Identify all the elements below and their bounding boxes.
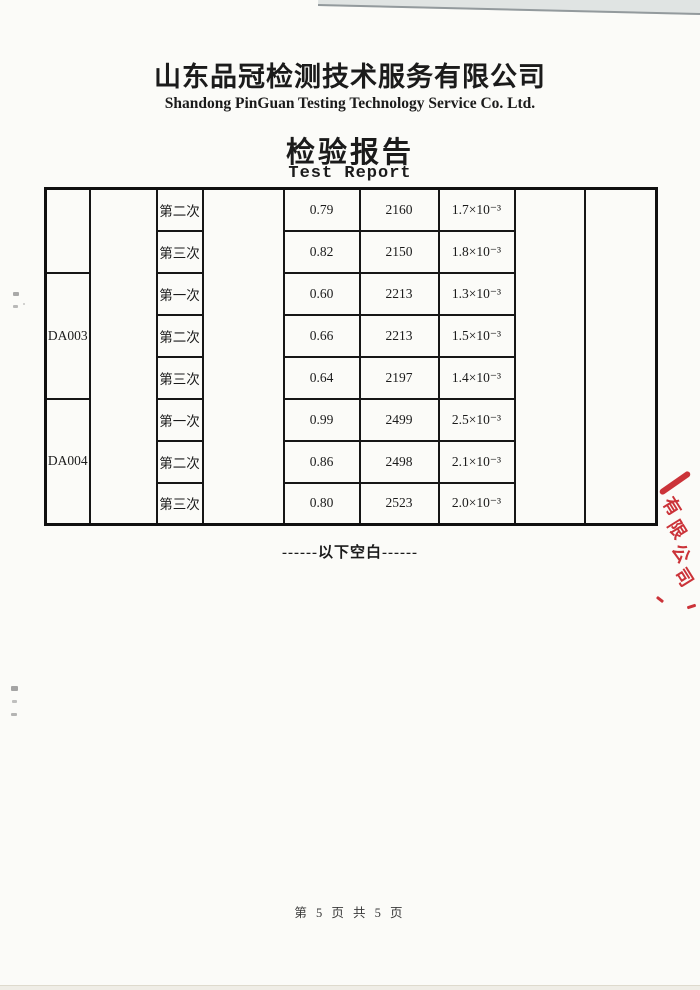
- value-cell: 0.99: [284, 399, 360, 441]
- test-results-table: 第二次 0.79 2160 1.7×10⁻³ 第三次 0.82 2150 1.8…: [44, 187, 658, 526]
- scan-edge-artifact-top: [318, 0, 700, 16]
- trial-cell: 第一次: [157, 399, 203, 441]
- red-seal-stamp: 有 限 公 司: [648, 466, 700, 626]
- scan-smudge: [11, 686, 18, 691]
- trial-cell: 第一次: [157, 273, 203, 315]
- reading-cell: 2150: [360, 231, 439, 273]
- value-cell: 0.66: [284, 315, 360, 357]
- result-cell: 2.1×10⁻³: [439, 441, 515, 483]
- seal-mark: [687, 604, 696, 610]
- seal-mark: [656, 596, 664, 603]
- seal-char: 公: [668, 542, 693, 567]
- reading-cell: 2197: [360, 357, 439, 399]
- result-cell: 1.5×10⁻³: [439, 315, 515, 357]
- below-blank-note: ------以下空白------: [0, 541, 700, 562]
- page-number: 第 5 页 共 5 页: [0, 902, 700, 921]
- trial-cell: 第三次: [157, 357, 203, 399]
- scan-smudge: [11, 713, 17, 716]
- reading-cell: 2523: [360, 483, 439, 525]
- value-cell: 0.79: [284, 189, 360, 231]
- result-cell: 1.4×10⁻³: [439, 357, 515, 399]
- result-cell: 1.3×10⁻³: [439, 273, 515, 315]
- value-cell: 0.82: [284, 231, 360, 273]
- empty-column-cell: [90, 189, 157, 525]
- result-cell: 1.8×10⁻³: [439, 231, 515, 273]
- sample-id-cell: DA003: [46, 273, 90, 399]
- reading-cell: 2213: [360, 273, 439, 315]
- seal-char: 限: [664, 518, 689, 543]
- value-cell: 0.60: [284, 273, 360, 315]
- result-cell: 2.0×10⁻³: [439, 483, 515, 525]
- scan-smudge: [13, 305, 18, 308]
- trial-cell: 第二次: [157, 189, 203, 231]
- result-cell: 2.5×10⁻³: [439, 399, 515, 441]
- trial-cell: 第二次: [157, 441, 203, 483]
- value-cell: 0.86: [284, 441, 360, 483]
- value-cell: 0.64: [284, 357, 360, 399]
- empty-column-cell: [203, 189, 284, 525]
- reading-cell: 2213: [360, 315, 439, 357]
- sample-id-cell: [46, 189, 90, 273]
- result-cell: 1.7×10⁻³: [439, 189, 515, 231]
- seal-stroke: [659, 470, 692, 496]
- empty-column-cell: [515, 189, 585, 525]
- reading-cell: 2498: [360, 441, 439, 483]
- sample-id-cell: DA004: [46, 399, 90, 525]
- empty-column-cell: [585, 189, 657, 525]
- trial-cell: 第三次: [157, 231, 203, 273]
- reading-cell: 2499: [360, 399, 439, 441]
- table-row: 第二次 0.79 2160 1.7×10⁻³: [46, 189, 657, 231]
- company-name-en: Shandong PinGuan Testing Technology Serv…: [0, 95, 700, 113]
- trial-cell: 第三次: [157, 483, 203, 525]
- scan-smudge: [23, 303, 25, 305]
- scan-smudge: [13, 292, 19, 296]
- company-name-cn: 山东品冠检测技术服务有限公司: [0, 55, 700, 94]
- scan-edge-artifact-bottom: [0, 985, 700, 990]
- scan-smudge: [12, 700, 17, 703]
- scanned-report-page: 山东品冠检测技术服务有限公司 Shandong PinGuan Testing …: [0, 0, 700, 990]
- value-cell: 0.80: [284, 483, 360, 525]
- trial-cell: 第二次: [157, 315, 203, 357]
- seal-char: 司: [671, 566, 696, 591]
- report-title-en: Test Report: [0, 164, 700, 183]
- reading-cell: 2160: [360, 189, 439, 231]
